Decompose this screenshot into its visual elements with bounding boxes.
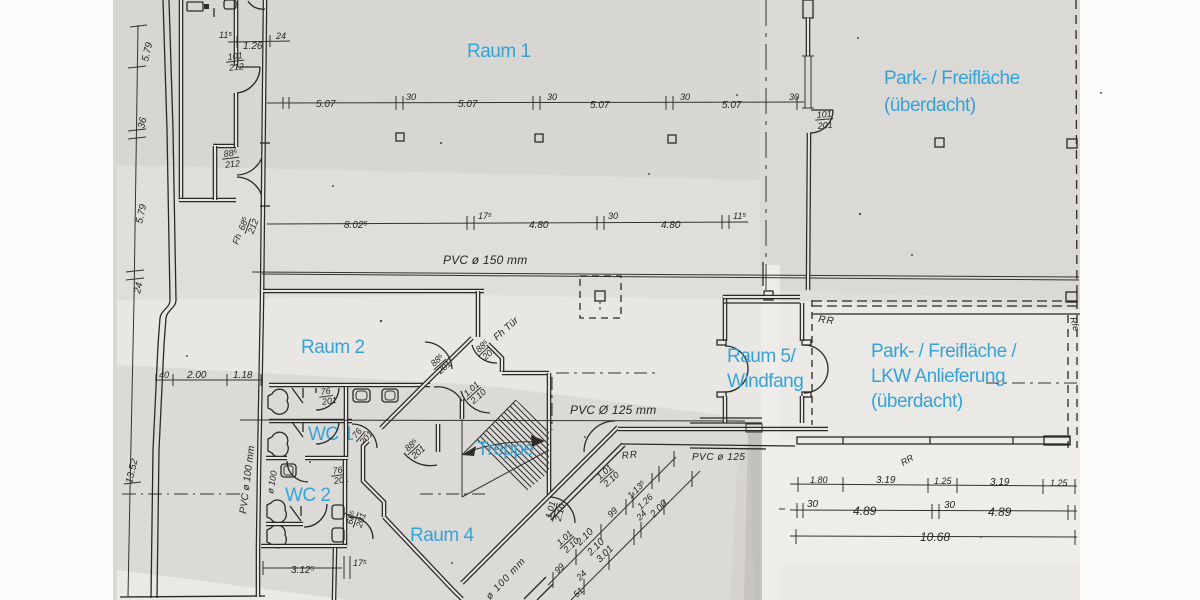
svg-text:5.07: 5.07 bbox=[590, 100, 610, 111]
svg-text:8.02⁵: 8.02⁵ bbox=[344, 220, 368, 231]
svg-text:Raum 5/: Raum 5/ bbox=[727, 346, 797, 367]
svg-text:201: 201 bbox=[816, 120, 833, 131]
svg-text:13.52: 13.52 bbox=[124, 457, 140, 484]
svg-text:Treppe: Treppe bbox=[477, 439, 534, 460]
svg-text:4.89: 4.89 bbox=[988, 505, 1012, 519]
svg-text:212: 212 bbox=[223, 158, 240, 170]
svg-text:5.07: 5.07 bbox=[458, 99, 478, 110]
svg-text:30: 30 bbox=[547, 92, 557, 102]
svg-text:36: 36 bbox=[136, 116, 149, 130]
svg-text:5.79: 5.79 bbox=[140, 41, 155, 63]
svg-text:ø 100 mm: ø 100 mm bbox=[484, 556, 528, 600]
svg-text:1.80: 1.80 bbox=[810, 475, 828, 485]
svg-text:24: 24 bbox=[574, 568, 589, 583]
svg-text:5.07: 5.07 bbox=[722, 100, 742, 111]
svg-text:24: 24 bbox=[275, 31, 286, 41]
svg-text:1.25: 1.25 bbox=[934, 476, 953, 486]
svg-text:RR: RR bbox=[621, 449, 639, 462]
svg-text:ø 100: ø 100 bbox=[265, 470, 279, 494]
svg-text:Park- / Freifläche: Park- / Freifläche bbox=[884, 68, 1020, 89]
svg-text:10.68: 10.68 bbox=[920, 530, 950, 544]
svg-text:PVC ø 100 mm: PVC ø 100 mm bbox=[238, 445, 257, 514]
svg-text:11⁵: 11⁵ bbox=[733, 211, 746, 221]
svg-text:(überdacht): (überdacht) bbox=[871, 391, 963, 412]
svg-text:LKW Anlieferung: LKW Anlieferung bbox=[871, 366, 1005, 387]
svg-text:4.89: 4.89 bbox=[853, 504, 877, 518]
svg-text:PVC ø 125: PVC ø 125 bbox=[692, 452, 745, 463]
svg-text:Raum 2: Raum 2 bbox=[301, 337, 365, 358]
svg-text:30: 30 bbox=[680, 92, 690, 102]
svg-text:24: 24 bbox=[132, 281, 146, 296]
svg-text:30: 30 bbox=[789, 92, 799, 102]
svg-text:1.26: 1.26 bbox=[243, 41, 263, 52]
svg-text:Raum 1: Raum 1 bbox=[467, 41, 531, 62]
svg-text:24: 24 bbox=[634, 508, 649, 523]
svg-text:99: 99 bbox=[552, 561, 566, 575]
svg-text:Windfang: Windfang bbox=[727, 371, 803, 392]
svg-text:5.79: 5.79 bbox=[134, 203, 149, 225]
svg-text:99: 99 bbox=[605, 505, 619, 519]
svg-text:5.07: 5.07 bbox=[316, 99, 336, 110]
svg-text:40: 40 bbox=[159, 370, 169, 380]
svg-text:Rfe: Rfe bbox=[1068, 316, 1081, 332]
svg-text:30: 30 bbox=[608, 211, 618, 221]
svg-text:1.18: 1.18 bbox=[233, 370, 253, 381]
svg-text:RR: RR bbox=[818, 314, 836, 327]
svg-text:RR: RR bbox=[899, 452, 916, 467]
svg-text:17⁵: 17⁵ bbox=[478, 211, 492, 221]
svg-text:Fh Tür: Fh Tür bbox=[492, 315, 522, 343]
svg-text:WC 2: WC 2 bbox=[285, 485, 331, 506]
svg-text:11⁵: 11⁵ bbox=[219, 30, 232, 40]
svg-text:201: 201 bbox=[320, 395, 337, 407]
svg-text:212: 212 bbox=[227, 61, 244, 73]
svg-text:3.19: 3.19 bbox=[990, 477, 1010, 488]
svg-text:30: 30 bbox=[807, 499, 819, 510]
svg-text:4.80: 4.80 bbox=[661, 220, 681, 231]
svg-text:101: 101 bbox=[816, 109, 832, 120]
svg-text:3.12⁵: 3.12⁵ bbox=[291, 565, 315, 576]
svg-text:Fh: Fh bbox=[230, 232, 243, 245]
svg-text:30: 30 bbox=[406, 92, 416, 102]
svg-text:PVC Ø 125 mm: PVC Ø 125 mm bbox=[570, 403, 656, 417]
svg-text:PVC ø 150 mm: PVC ø 150 mm bbox=[443, 253, 527, 267]
svg-text:3.19: 3.19 bbox=[876, 475, 896, 486]
svg-text:(überdacht): (überdacht) bbox=[884, 95, 976, 116]
svg-text:4.80: 4.80 bbox=[529, 220, 549, 231]
svg-text:17⁵: 17⁵ bbox=[353, 558, 367, 568]
svg-text:Park- / Freifläche /: Park- / Freifläche / bbox=[871, 341, 1017, 362]
svg-text:2.00: 2.00 bbox=[186, 370, 207, 381]
svg-text:1.25: 1.25 bbox=[1050, 478, 1069, 488]
svg-text:30: 30 bbox=[944, 500, 956, 511]
svg-text:Raum 4: Raum 4 bbox=[410, 525, 474, 546]
